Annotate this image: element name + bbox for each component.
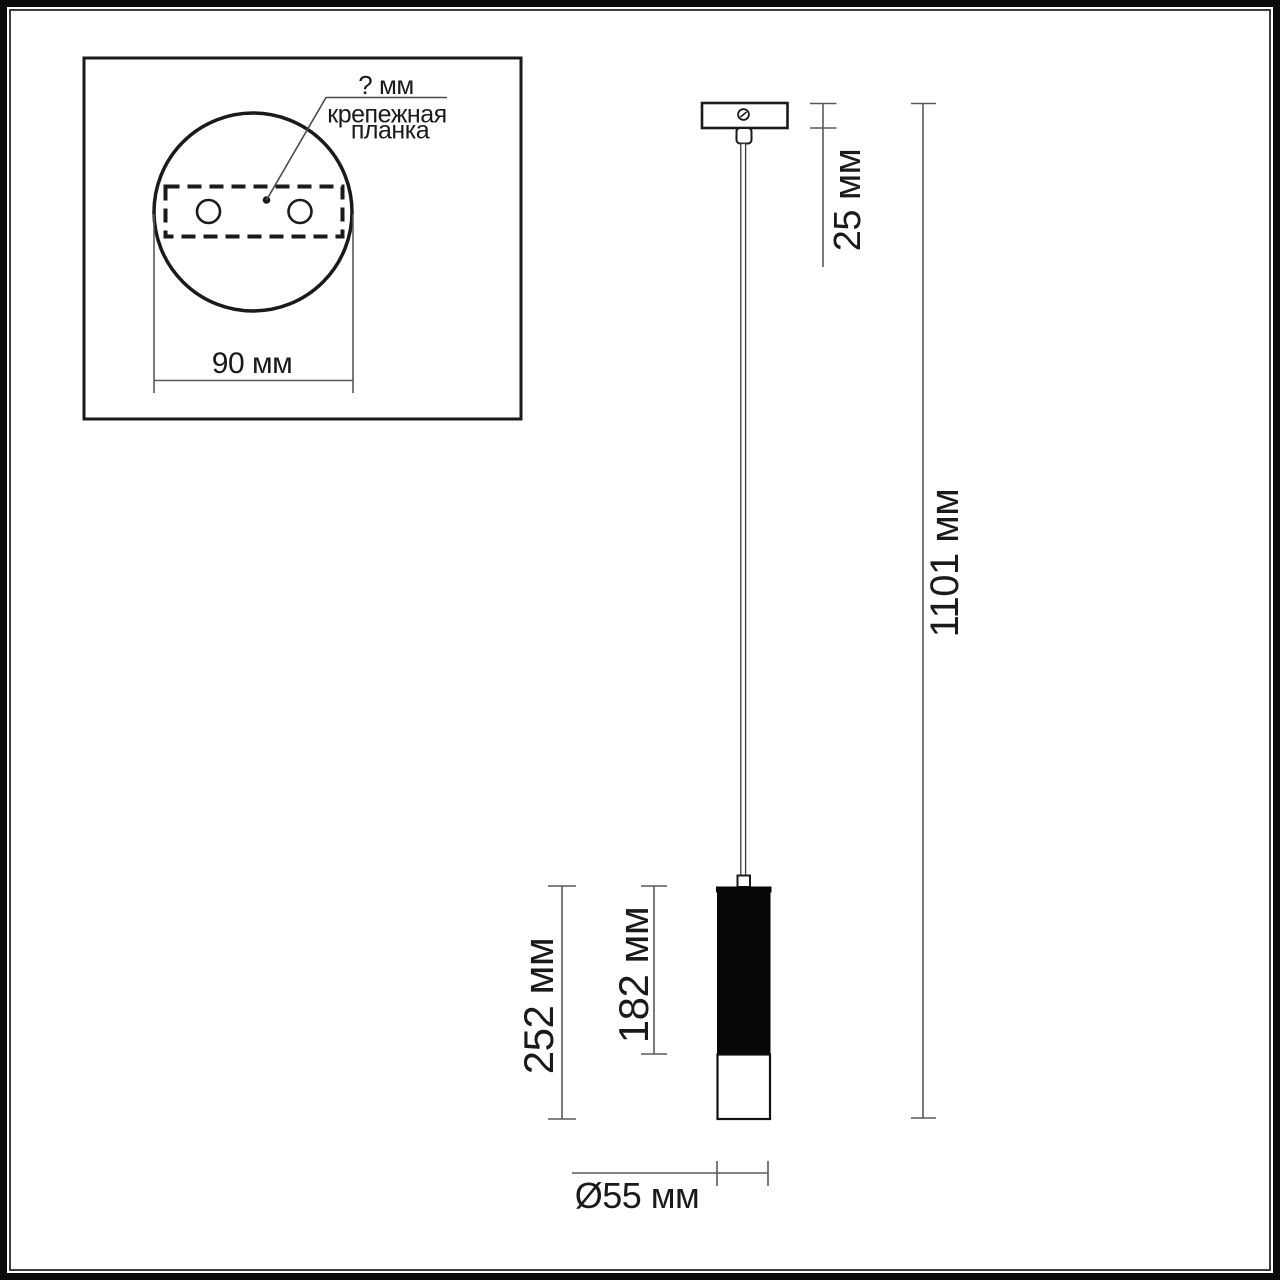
mount-hole-left [197, 200, 220, 223]
pendant-lamp-group [702, 103, 788, 1119]
suspension-wire [741, 144, 746, 876]
canopy-offset-dimension-label: 25 мм [829, 149, 867, 252]
shade-black-section [717, 887, 771, 1055]
wire-grip-top [737, 128, 752, 144]
base-width-dimension-label: 90 мм [212, 349, 292, 379]
mount-hole-right [289, 200, 312, 223]
hole-spacing-label: ? мм [358, 72, 413, 98]
diagram-line-art [0, 0, 1280, 1280]
overall-height-dimension-label: 1101 мм [925, 489, 965, 638]
ceiling-plate [702, 103, 788, 128]
inset-detail-group [84, 58, 521, 419]
ceiling-cup-circle [154, 113, 352, 311]
shade-overall-height-dimension-label: 252 мм [518, 938, 560, 1075]
shade-black-section-dimension-label: 182 мм [613, 907, 655, 1044]
technical-drawing-canvas: ? мм крепежная планка 90 мм 25 мм 1101 м… [0, 0, 1280, 1280]
mount-plate-label-line2: планка [351, 119, 429, 144]
wire-grip-bottom [738, 876, 751, 888]
mount-bracket-dashed-rect [166, 187, 343, 237]
shade-diffuser-section [718, 1055, 771, 1120]
shade-diameter-dimension-label: Ø55 мм [575, 1178, 700, 1214]
